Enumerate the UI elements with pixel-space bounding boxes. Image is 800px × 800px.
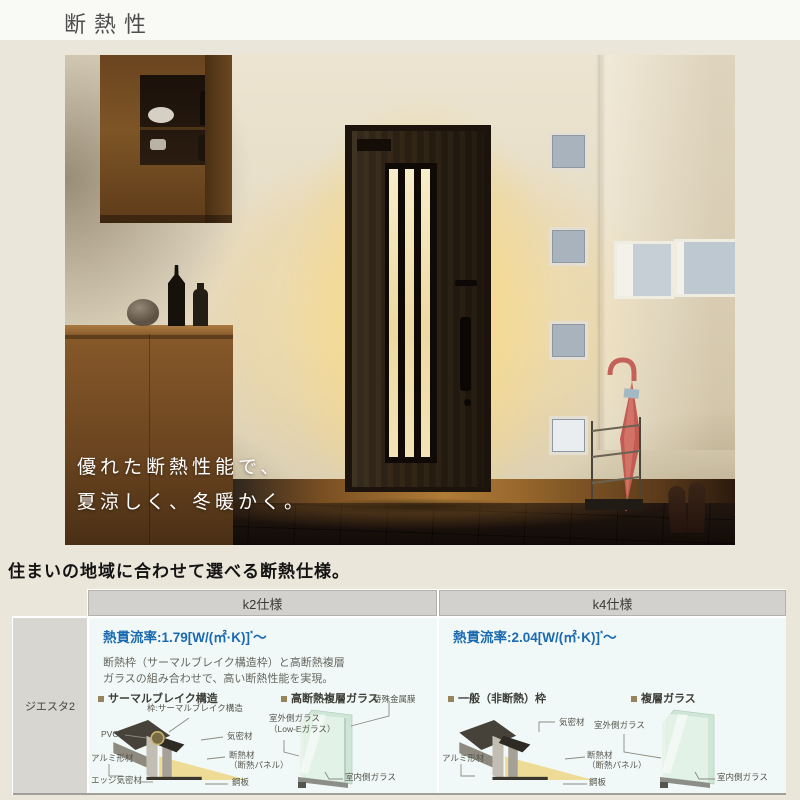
label-inner-glass: 室内側ガラス — [717, 773, 768, 783]
page-title: 断熱性 — [64, 7, 154, 39]
door-glass-slit — [421, 169, 430, 457]
round-vase — [127, 299, 159, 326]
u-value-k4: 熱貫流率:2.04[W/(㎡·K)]*〜 — [453, 626, 617, 646]
slit-window — [549, 227, 588, 266]
label-frame-top: 枠:サーマルブレイク構造 — [147, 704, 243, 714]
boot — [668, 486, 687, 534]
entrance-photo: 優れた断熱性能で、 夏涼しく、冬暖かく。 — [65, 55, 735, 545]
label-metal-film: 特殊金属膜 — [373, 695, 416, 705]
square-bullet-icon — [281, 696, 287, 702]
table-bottom-border — [13, 793, 786, 795]
hero-caption: 優れた断熱性能で、 夏涼しく、冬暖かく。 — [77, 450, 307, 520]
label-dannetsu-panel: （断熱パネル） — [587, 761, 647, 771]
white-cup — [150, 139, 166, 150]
door-hinge — [357, 139, 391, 151]
u-value-k2: 熱貫流率:1.79[W/(㎡·K)]*〜 — [103, 626, 267, 646]
umbrella-band — [624, 388, 640, 399]
small-vase — [193, 289, 208, 326]
spec-cell-k4: 熱貫流率:2.04[W/(㎡·K)]*〜 一般（非断熱）枠 複層ガラス — [439, 618, 786, 793]
spec-cell-k2: 熱貫流率:1.79[W/(㎡·K)]*〜 断熱枠（サーマルブレイク構造枠）と高断… — [89, 618, 437, 793]
label-outer-glass: 室外側ガラス — [594, 721, 645, 731]
label-kohan: 鋼板 — [589, 778, 606, 788]
row-label: ジエスタ2 — [13, 618, 87, 793]
label-edge: エッジ気密材 — [91, 776, 142, 786]
white-bowl — [148, 107, 174, 123]
glass-title-text: 複層ガラス — [641, 693, 696, 705]
door-floor-shadow — [313, 498, 527, 514]
column-header-k4: k4仕様 — [439, 590, 786, 616]
hero-caption-line2: 夏涼しく、冬暖かく。 — [77, 485, 307, 520]
wall-cabinet-shadow — [100, 215, 232, 223]
spec-desc-line2: ガラスの組み合わせで、高い断熱性能を実現。 — [103, 670, 333, 686]
glass-title-text: 高断熱複層ガラス — [291, 693, 379, 705]
tall-vase — [168, 265, 185, 326]
door-glass-panel — [385, 163, 437, 463]
glass-diagram-title: 高断熱複層ガラス — [281, 690, 379, 706]
boot — [687, 482, 706, 534]
section-heading: 住まいの地域に合わせて選べる断熱仕様。 — [8, 557, 350, 582]
u-value-text: 熱貫流率:1.79[W/(㎡·K)] — [103, 630, 250, 645]
glass-diagram-title: 複層ガラス — [631, 690, 696, 706]
label-kimitsu: 気密材 — [227, 732, 253, 742]
umbrella-handle-icon — [610, 360, 634, 381]
column-header-k2: k2仕様 — [88, 590, 437, 616]
wall-cabinet-side — [205, 55, 232, 223]
page: 断熱性 — [0, 0, 800, 800]
label-outer-glass-lowe: （Low-Eガラス） — [269, 725, 335, 735]
label-dannetsu-panel: （断熱パネル） — [229, 761, 289, 771]
spec-desc-line1: 断熱枠（サーマルブレイク構造枠）と高断熱複層 — [103, 654, 345, 670]
square-bullet-icon — [98, 696, 104, 702]
u-value-tail: 〜 — [253, 630, 267, 645]
umbrella-stand — [580, 351, 650, 513]
label-pvc: PVC — [101, 730, 118, 740]
slit-window — [549, 132, 588, 171]
door-glass-slit — [405, 169, 414, 457]
label-kimitsu: 気密材 — [559, 718, 585, 728]
door-lock-knob — [464, 399, 471, 406]
door-glass-slit — [389, 169, 398, 457]
corner-window — [614, 241, 674, 299]
u-value-tail: 〜 — [603, 630, 617, 645]
hero-caption-line1: 優れた断熱性能で、 — [77, 450, 307, 485]
label-inner-glass: 室内側ガラス — [345, 773, 396, 783]
door-thumbturn — [455, 280, 477, 286]
label-alumi: アルミ形材 — [442, 754, 484, 764]
label-kohan: 鋼板 — [232, 778, 249, 788]
sideboard-top-shadow — [65, 335, 233, 339]
door-handle — [460, 317, 471, 391]
square-bullet-icon — [448, 696, 454, 702]
entrance-door — [352, 131, 484, 487]
stand-base — [585, 499, 643, 510]
frame-diagram-title: 一般（非断熱）枠 — [448, 690, 546, 706]
square-bullet-icon — [631, 696, 637, 702]
corner-window — [674, 239, 735, 297]
label-alumi: アルミ形材 — [91, 754, 133, 764]
label-outer-glass: 室外側ガラス — [269, 714, 320, 724]
frame-title-text: 一般（非断熱）枠 — [458, 693, 546, 705]
u-value-text: 熱貫流率:2.04[W/(㎡·K)] — [453, 630, 600, 645]
